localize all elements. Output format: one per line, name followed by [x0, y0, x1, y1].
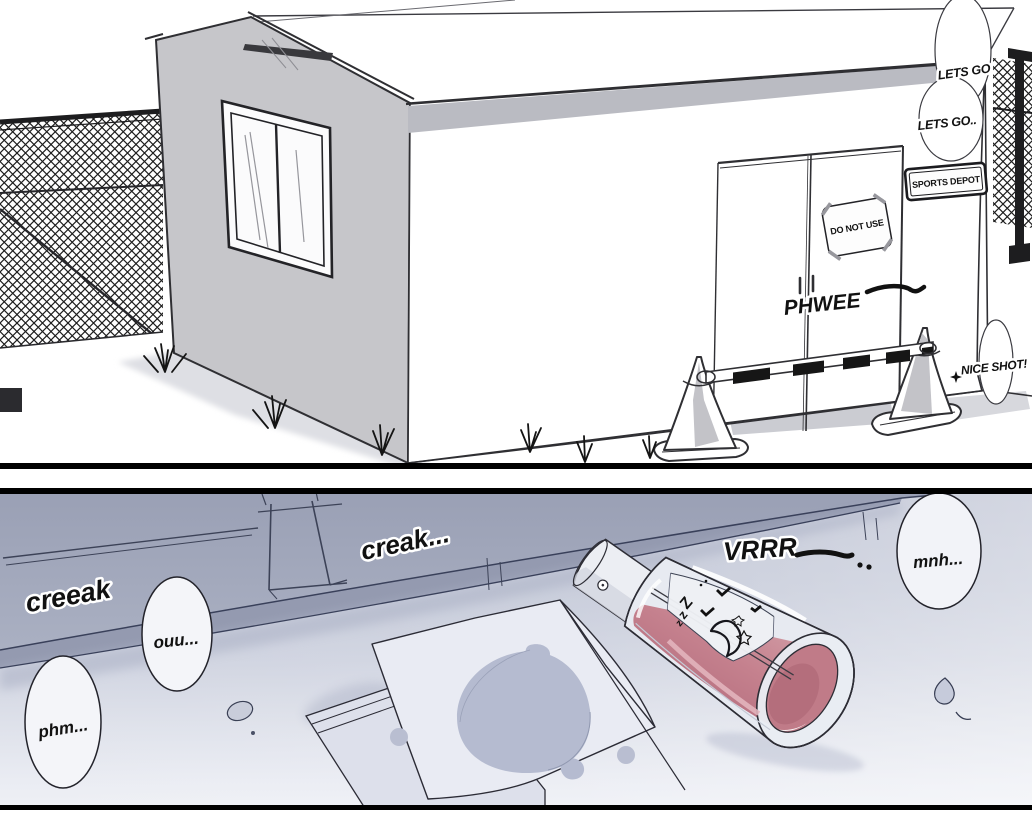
svg-text:VRRR: VRRR	[722, 531, 798, 566]
